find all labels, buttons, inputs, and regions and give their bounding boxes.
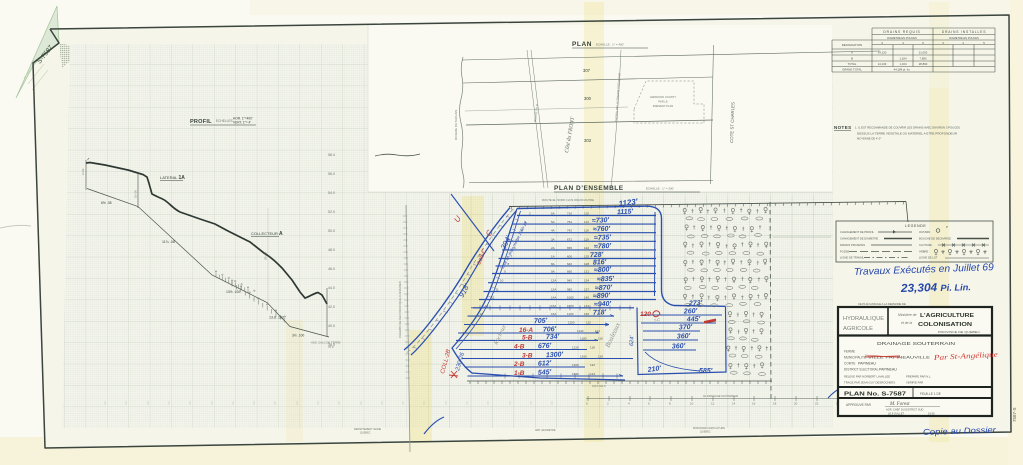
svg-text:HYDRAULIQUE: HYDRAULIQUE — [843, 316, 884, 322]
svg-text:370′: 370′ — [679, 324, 693, 332]
svg-text:122: 122 — [590, 363, 595, 367]
svg-text:140: 140 — [584, 296, 589, 300]
svg-text:945: 945 — [567, 279, 572, 283]
svg-text:LE 8 JUILLET: LE 8 JUILLET — [888, 412, 905, 416]
svg-text:≈870′: ≈870′ — [595, 284, 613, 292]
svg-text:22: 22 — [815, 402, 819, 406]
svg-text:116: 116 — [598, 336, 603, 340]
svg-text:4-B: 4-B — [513, 344, 525, 351]
svg-text:124: 124 — [590, 372, 595, 376]
svg-text:FEUILLE 1 DE: FEUILLE 1 DE — [920, 392, 941, 396]
svg-text:MUNICIPALITE: MUNICIPALITE — [844, 356, 866, 360]
svg-text:PROVINCE DE QUEBEC: PROVINCE DE QUEBEC — [938, 330, 980, 334]
svg-text:52.0: 52.0 — [328, 210, 335, 214]
svg-text:2-B: 2-B — [513, 361, 525, 368]
svg-text:1,164: 1,164 — [900, 62, 907, 66]
svg-text:612′: 612′ — [538, 360, 552, 368]
svg-text:GRAND TOTAL: GRAND TOTAL — [842, 68, 862, 72]
svg-text:MOYENNE DE 4′-0″: MOYENNE DE 4′-0″ — [857, 137, 881, 141]
svg-text:13.8 .100: 13.8 .100 — [269, 316, 284, 320]
svg-text:PRESENT PLAN: PRESENT PLAN — [653, 104, 673, 108]
svg-text:56.0: 56.0 — [328, 172, 335, 176]
svg-text:LEGENDE: LEGENDE — [905, 224, 926, 228]
svg-text:FOSSE: FOSSE — [840, 250, 849, 254]
svg-text:PLAN No. S-7587: PLAN No. S-7587 — [844, 392, 906, 398]
svg-text:110: 110 — [584, 212, 589, 216]
svg-text:16: 16 — [752, 402, 756, 406]
svg-text:12A: 12A — [551, 279, 556, 283]
svg-text:21,000: 21,000 — [919, 51, 928, 55]
svg-text:RELEVE PAR NORBERT LAVALLEE: RELEVE PAR NORBERT LAVALLEE — [844, 375, 890, 379]
svg-text:PAPINEAU: PAPINEAU — [858, 362, 876, 366]
svg-text:COMTE: COMTE — [844, 362, 856, 366]
svg-text:PREPARE PAR N.L.: PREPARE PAR N.L. — [906, 375, 932, 379]
svg-text:ASS. CALC DE TERRE: ASS. CALC DE TERRE — [311, 341, 341, 345]
svg-text:et de la: et de la — [901, 321, 912, 325]
svg-text:545′: 545′ — [538, 369, 552, 377]
svg-text:OUTARD: OUTARD — [919, 230, 930, 234]
svg-text:985: 985 — [567, 288, 572, 292]
svg-text:ECHELLES: ECHELLES — [216, 119, 233, 123]
svg-text:50.0: 50.0 — [328, 229, 335, 233]
svg-text:10+00: 10+00 — [134, 190, 138, 198]
svg-text:DRAINS INSTALLES: DRAINS INSTALLES — [942, 30, 987, 34]
svg-text:DRAINAGE SOUTERRAIN: DRAINAGE SOUTERRAIN — [877, 341, 955, 346]
svg-text:ECHELLE : 1″ = 200′: ECHELLE : 1″ = 200′ — [646, 187, 674, 191]
svg-text:LE DRAINAGE SOUTERRAIN: LE DRAINAGE SOUTERRAIN — [703, 394, 738, 398]
svg-text:≈780′: ≈780′ — [594, 243, 612, 251]
svg-text:360′: 360′ — [672, 343, 686, 351]
svg-text:QUEBEC: QUEBEC — [360, 432, 371, 435]
svg-text:DESSUS LA TERRE VEGETALE O: DESSUS LA TERRE VEGETALE OU MATERIEL A E… — [857, 132, 957, 136]
svg-text:PAR LE: PAR LE — [658, 100, 668, 104]
svg-text:FERME: FERME — [844, 350, 855, 354]
svg-text:1220: 1220 — [572, 346, 579, 350]
svg-text:Ministère de: Ministère de — [898, 313, 917, 317]
svg-text:25+00: 25+00 — [264, 252, 268, 260]
svg-text:146: 146 — [584, 312, 589, 316]
svg-text:5-B: 5-B — [522, 335, 533, 342]
svg-text:≈890′: ≈890′ — [593, 292, 611, 300]
svg-text:125: 125 — [584, 255, 589, 259]
svg-text:672: 672 — [567, 237, 572, 241]
svg-text:12: 12 — [491, 296, 495, 300]
svg-text:DRAINS REQUIS: DRAINS REQUIS — [883, 30, 920, 34]
svg-text:816′: 816′ — [593, 259, 607, 267]
svg-text:14A: 14A — [551, 296, 556, 300]
svg-text:≈760′: ≈760′ — [593, 226, 611, 234]
svg-text:1A: 1A — [551, 255, 555, 259]
svg-text:6A: 6A — [551, 212, 555, 216]
svg-text:44.0: 44.0 — [328, 286, 335, 290]
svg-text:44,184 pi. lin.: 44,184 pi. lin. — [894, 68, 911, 72]
svg-text:1005: 1005 — [567, 296, 574, 300]
svg-text:137: 137 — [584, 288, 589, 292]
svg-text:VERIFIE PAR: VERIFIE PAR — [906, 381, 923, 385]
svg-text:DIAMETRE EN POUCES: DIAMETRE EN POUCES — [887, 36, 917, 40]
svg-text:600: 600 — [567, 255, 572, 259]
svg-text:1-B: 1-B — [514, 370, 525, 377]
svg-text:18: 18 — [773, 402, 777, 406]
svg-text:14: 14 — [480, 312, 484, 316]
svg-text:128: 128 — [584, 262, 589, 266]
svg-text:PLAN D’ENSEMBLE: PLAN D’ENSEMBLE — [554, 185, 624, 192]
svg-text:CE PLAN ANNULE A LA DEMANDE DE: CE PLAN ANNULE A LA DEMANDE DE — [858, 302, 906, 306]
svg-text:40.0: 40.0 — [328, 324, 335, 328]
svg-text:10: 10 — [690, 402, 694, 406]
svg-text:16-A: 16-A — [519, 327, 533, 334]
svg-text:1300: 1300 — [572, 363, 579, 367]
svg-text:ARP. GEOMETRE: ARP. GEOMETRE — [535, 429, 556, 432]
svg-text:134: 134 — [584, 279, 589, 283]
svg-text:ROUTE EL NORD CLOS DRAIN MAITR: ROUTE EL NORD CLOS DRAIN MAITRE — [542, 198, 594, 202]
svg-text:1180: 1180 — [580, 336, 587, 340]
svg-text:PLAN: PLAN — [572, 41, 592, 48]
svg-text:4A: 4A — [551, 229, 555, 233]
svg-text:585′: 585′ — [699, 368, 713, 375]
svg-text:15A: 15A — [551, 304, 556, 308]
svg-text:300: 300 — [584, 96, 592, 101]
svg-text:10: 10 — [500, 279, 504, 283]
svg-text:DIAMETRE EN POUCES: DIAMETRE EN POUCES — [949, 36, 979, 40]
svg-text:20: 20 — [794, 402, 798, 406]
svg-text:122: 122 — [584, 246, 589, 250]
svg-text:114: 114 — [595, 329, 600, 333]
svg-text:728′: 728′ — [590, 252, 604, 260]
svg-text:NOTES: NOTES — [834, 125, 852, 130]
svg-text:AGRICOLE: AGRICOLE — [843, 326, 873, 332]
svg-text:LIGNE DE LOT: LIGNE DE LOT — [919, 256, 938, 260]
svg-text:660: 660 — [567, 270, 572, 274]
svg-text:APPROUVE PAR: APPROUVE PAR — [846, 403, 872, 407]
svg-text:28,890: 28,890 — [919, 62, 928, 66]
svg-text:14,130: 14,130 — [878, 62, 887, 66]
svg-text:AGR. CHEF DU DISTRICT SUD: AGR. CHEF DU DISTRICT SUD — [886, 408, 924, 412]
svg-text:303: 303 — [584, 138, 592, 143]
svg-text:762: 762 — [567, 220, 572, 224]
svg-text:734′: 734′ — [546, 334, 560, 342]
svg-text:16A: 16A — [551, 312, 556, 316]
svg-text:1260: 1260 — [580, 355, 587, 359]
svg-text:CHEMIN DE FER PACIFIQUE CANADI: CHEMIN DE FER PACIFIQUE CANADIEN — [398, 281, 402, 338]
svg-text:PAPINEAU: PAPINEAU — [879, 368, 897, 372]
svg-text:1115′: 1115′ — [617, 208, 634, 216]
svg-text:VERT. 1″= 4′: VERT. 1″= 4′ — [233, 121, 251, 125]
svg-text:A: A — [851, 51, 853, 55]
svg-text:COLONISATION: COLONISATION — [918, 322, 972, 328]
svg-text:8A: 8A — [551, 262, 555, 266]
svg-text:1100: 1100 — [568, 321, 575, 325]
svg-text:58.4: 58.4 — [328, 153, 335, 157]
svg-text:1340: 1340 — [572, 372, 579, 376]
svg-text:54.0: 54.0 — [328, 191, 335, 195]
svg-text:1. IL EST RECOMMANDE DE COUVRI: 1. IL EST RECOMMANDE DE COUVRIR LES DRAI… — [855, 126, 960, 130]
svg-text:46.0: 46.0 — [328, 267, 335, 271]
svg-text:TOTAL: TOTAL — [848, 62, 857, 66]
svg-text:M. Forest: M. Forest — [889, 402, 910, 407]
svg-text:13: 13 — [485, 304, 489, 308]
svg-text:≈835′: ≈835′ — [597, 276, 615, 284]
svg-text:ARBRE: ARBRE — [919, 250, 928, 254]
svg-text:11¾ .08: 11¾ .08 — [162, 240, 175, 244]
svg-text:≈940′: ≈940′ — [594, 301, 612, 309]
svg-text:676′: 676′ — [538, 343, 552, 351]
svg-text:19 69: 19 69 — [928, 412, 935, 416]
svg-text:118: 118 — [590, 346, 595, 350]
svg-text:120: 120 — [640, 311, 651, 318]
svg-text:B: B — [851, 57, 853, 61]
svg-text:710: 710 — [567, 212, 572, 216]
svg-text:910.5 911.5: 910.5 911.5 — [592, 384, 606, 388]
svg-text:307: 307 — [583, 68, 591, 73]
svg-text:≈730′: ≈730′ — [592, 217, 610, 225]
svg-text:CHANGEMENT DE DIAMETRE: CHANGEMENT DE DIAMETRE — [840, 237, 878, 241]
svg-text:116: 116 — [584, 229, 589, 233]
svg-text:HARWOOD COUNTY: HARWOOD COUNTY — [650, 95, 677, 99]
svg-text:13½ .100: 13½ .100 — [226, 290, 240, 294]
svg-text:12: 12 — [711, 402, 715, 406]
svg-text:QUEBEC: QUEBEC — [700, 431, 711, 434]
svg-text:14,130: 14,130 — [878, 51, 887, 55]
svg-text:42.0: 42.0 — [328, 305, 335, 309]
svg-text:LIGNE DE TRAVAIL: LIGNE DE TRAVAIL — [840, 256, 865, 260]
svg-text:≈735′: ≈735′ — [594, 234, 612, 242]
svg-text:718′: 718′ — [593, 309, 607, 317]
svg-text:TRACE PAR JEAN-GUY DESROCHERS: TRACE PAR JEAN-GUY DESROCHERS — [844, 381, 895, 385]
svg-text:260′: 260′ — [683, 308, 698, 316]
svg-text:DESIGNATION: DESIGNATION — [842, 43, 862, 47]
svg-text:7,890: 7,890 — [920, 57, 927, 61]
svg-text:7587-S: 7587-S — [1012, 407, 1017, 422]
svg-text:38.0: 38.0 — [328, 343, 335, 347]
svg-text:1140: 1140 — [577, 329, 584, 333]
svg-text:6% .08: 6% .08 — [101, 201, 112, 205]
svg-text:2A: 2A — [551, 246, 555, 250]
svg-text:1100: 1100 — [567, 312, 574, 316]
svg-text:360′: 360′ — [677, 333, 691, 341]
svg-text:DISTRICT ELECTORAL: DISTRICT ELECTORAL — [844, 368, 879, 372]
svg-text:3A: 3A — [551, 237, 555, 241]
svg-text:ECHELLE : 1″ = 400′: ECHELLE : 1″ = 400′ — [596, 43, 624, 47]
svg-text:112: 112 — [586, 321, 591, 325]
svg-text:120: 120 — [598, 355, 603, 359]
svg-text:≈800′: ≈800′ — [594, 266, 612, 274]
svg-text:RIVIERE OUTAOUAIS: RIVIERE OUTAOUAIS — [454, 110, 458, 140]
svg-text:P: P — [946, 225, 948, 229]
svg-text:48.0: 48.0 — [328, 248, 335, 252]
svg-text:DRAINS PROJETES: DRAINS PROJETES — [840, 243, 865, 247]
svg-text:119: 119 — [584, 237, 589, 241]
svg-text:706′: 706′ — [543, 326, 557, 334]
svg-text:BOUCHE DE DECHARGE: BOUCHE DE DECHARGE — [919, 237, 951, 241]
svg-text:14: 14 — [732, 402, 736, 406]
svg-text:L’AGRICULTURE: L’AGRICULTURE — [920, 313, 974, 319]
svg-text:CLOTURE: CLOTURE — [919, 243, 932, 247]
svg-text:640: 640 — [567, 262, 572, 266]
svg-text:131: 131 — [584, 270, 589, 274]
svg-text:2+00: 2+00 — [81, 168, 85, 175]
svg-text:5A: 5A — [551, 220, 555, 224]
svg-text:624′: 624′ — [629, 335, 636, 346]
svg-text:143: 143 — [584, 304, 589, 308]
svg-text:1,164: 1,164 — [900, 57, 907, 61]
svg-text:11: 11 — [496, 288, 499, 292]
svg-text:113: 113 — [584, 220, 589, 224]
svg-text:CHANGEMENT DE PROFIL: CHANGEMENT DE PROFIL — [840, 230, 875, 234]
svg-text:655: 655 — [567, 246, 572, 250]
svg-text:3½ .100: 3½ .100 — [292, 334, 304, 338]
svg-text:445′: 445′ — [686, 316, 701, 324]
svg-text:13A: 13A — [551, 288, 556, 292]
svg-text:3-B: 3-B — [522, 353, 533, 360]
svg-text:742: 742 — [567, 229, 572, 233]
svg-text:1070: 1070 — [567, 304, 574, 308]
svg-text:1300′: 1300′ — [546, 351, 564, 359]
svg-text:705′: 705′ — [534, 318, 548, 326]
svg-text:9A: 9A — [551, 270, 555, 274]
svg-text:PROFIL: PROFIL — [190, 119, 212, 125]
